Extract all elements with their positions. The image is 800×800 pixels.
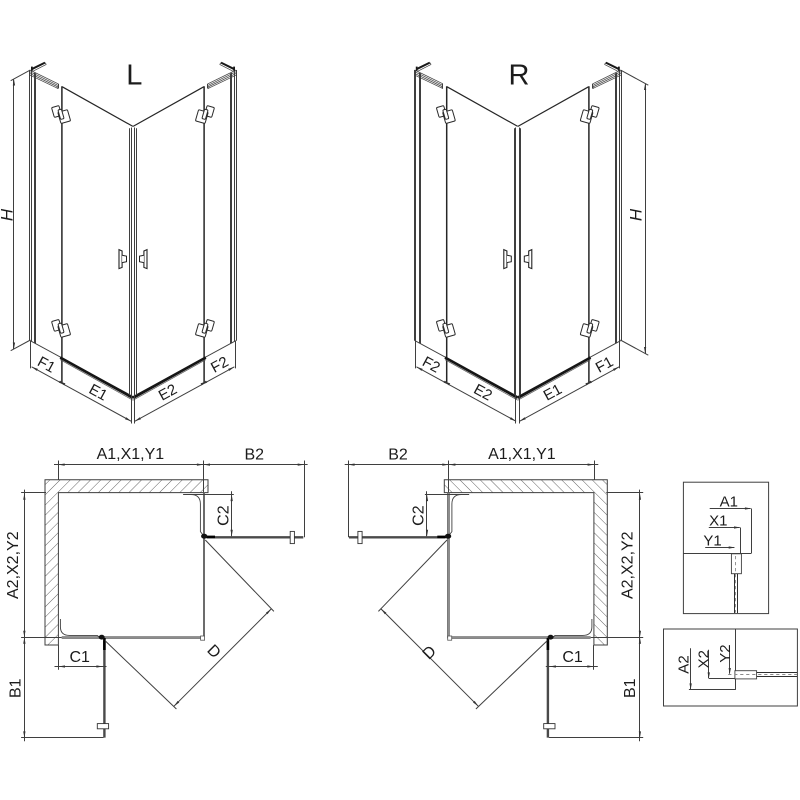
svg-text:C1: C1 xyxy=(562,649,583,666)
svg-text:A1: A1 xyxy=(720,493,738,510)
svg-text:A2,X2,Y2: A2,X2,Y2 xyxy=(620,531,637,599)
svg-text:H: H xyxy=(626,208,645,221)
svg-text:A1,X1,Y1: A1,X1,Y1 xyxy=(488,446,556,463)
svg-text:X2: X2 xyxy=(696,650,713,668)
svg-text:Y1: Y1 xyxy=(703,532,721,549)
svg-text:H: H xyxy=(0,208,17,221)
svg-text:C2: C2 xyxy=(411,505,428,526)
svg-text:A2,X2,Y2: A2,X2,Y2 xyxy=(5,531,22,599)
svg-text:C1: C1 xyxy=(69,649,90,666)
svg-text:B2: B2 xyxy=(388,447,408,464)
svg-text:Y2: Y2 xyxy=(717,644,734,662)
svg-text:R: R xyxy=(509,59,530,91)
svg-text:C2: C2 xyxy=(216,505,233,526)
svg-text:X1: X1 xyxy=(709,513,727,530)
svg-text:L: L xyxy=(126,59,142,91)
svg-text:A1,X1,Y1: A1,X1,Y1 xyxy=(97,446,165,463)
svg-text:B1: B1 xyxy=(7,678,24,698)
svg-text:B2: B2 xyxy=(245,447,265,464)
svg-text:B1: B1 xyxy=(622,678,639,698)
svg-text:A2: A2 xyxy=(676,655,693,673)
